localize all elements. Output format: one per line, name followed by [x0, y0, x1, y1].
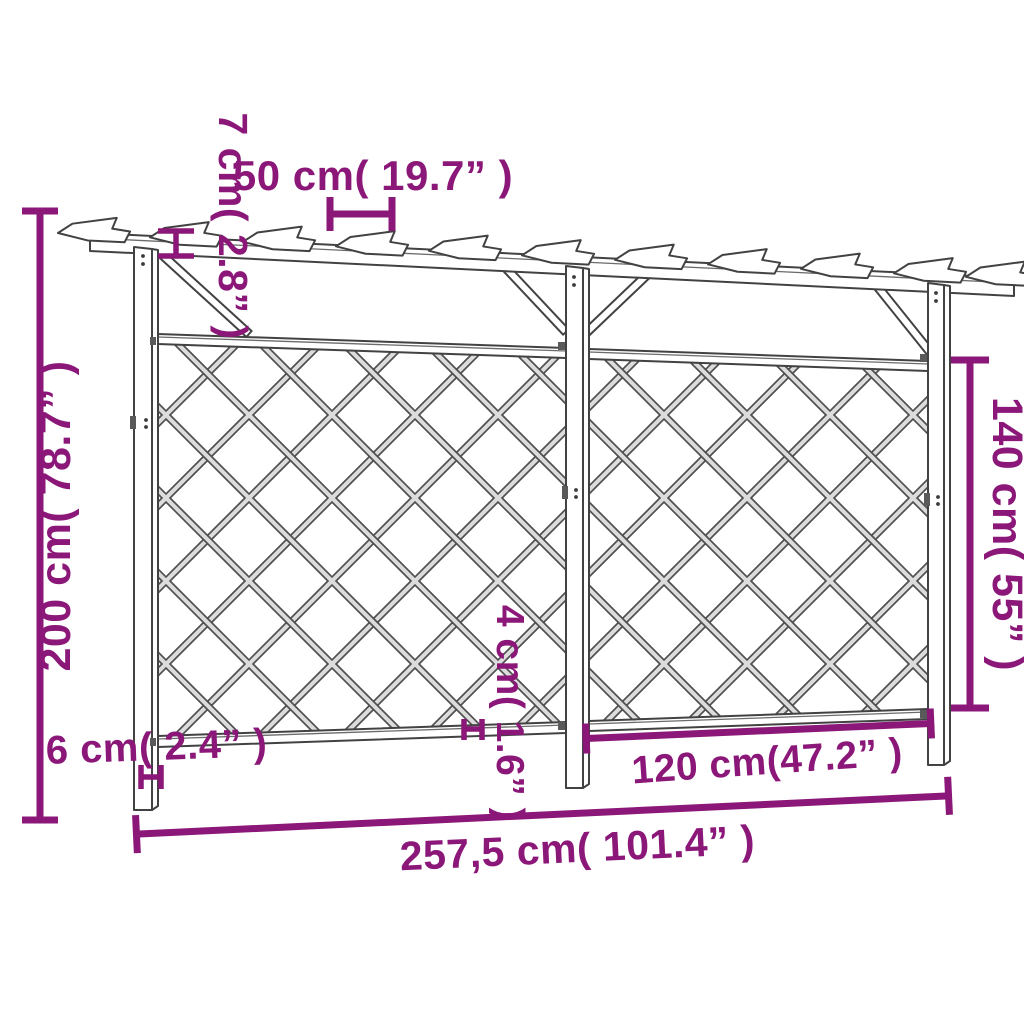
dim-total-height-label: 200 cm( 78.7” )	[32, 360, 80, 671]
knee-brace-middle-right	[583, 269, 653, 336]
dim-total-width-label: 257,5 cm( 101.4” )	[399, 817, 756, 880]
dim-post-width: 6 cm( 2.4” )	[45, 721, 268, 789]
dim-trellis-height: 140 cm( 55” )	[951, 360, 1024, 708]
middle-post	[562, 266, 589, 788]
dim-rafter-spacing-label: 50 cm( 19.7” )	[233, 152, 513, 199]
dim-total-width: 257,5 cm( 101.4” )	[136, 777, 950, 880]
diagram-canvas: 200 cm( 78.7” ) 7 cm( 2.8” ) 50 cm( 19.7…	[0, 0, 1024, 1024]
dim-trellis-height-label: 140 cm( 55” )	[983, 397, 1024, 671]
dim-panel-width-label: 120 cm(47.2” )	[630, 731, 904, 793]
pergola-trellis-diagram: 200 cm( 78.7” ) 7 cm( 2.8” ) 50 cm( 19.7…	[0, 0, 1024, 1024]
dim-beam-height-label: 7 cm( 2.8” )	[210, 112, 256, 339]
dim-post-width-label: 6 cm( 2.4” )	[45, 721, 268, 773]
trellis-panel-right	[589, 356, 928, 726]
dim-rafter-spacing: 50 cm( 19.7” )	[233, 152, 513, 231]
dim-rail-width-label: 4 cm( 1.6” )	[488, 605, 531, 821]
right-post	[924, 283, 950, 765]
